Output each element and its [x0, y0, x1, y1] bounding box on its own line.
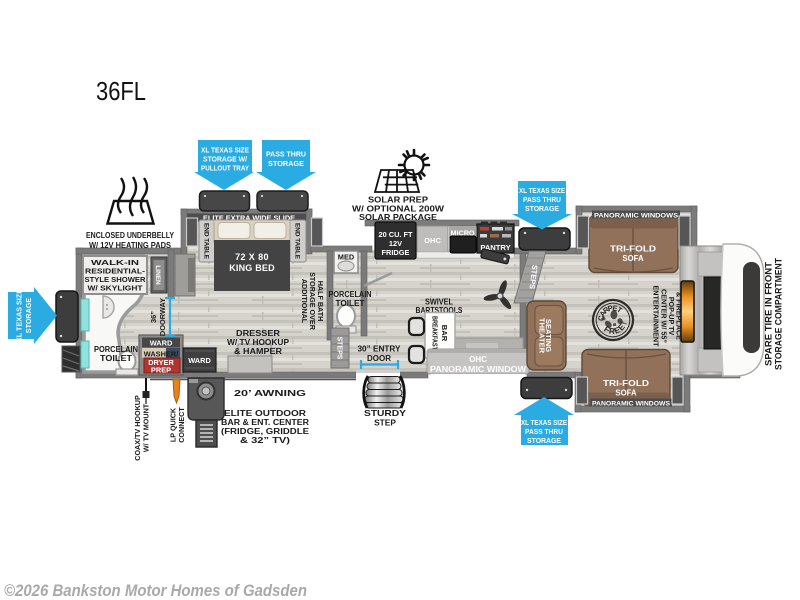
svg-text:STORAGE OVER: STORAGE OVER [308, 272, 317, 331]
svg-text:SOFA: SOFA [622, 254, 644, 263]
svg-text:KING BED: KING BED [229, 263, 275, 273]
svg-text:PORCELAIN: PORCELAIN [329, 290, 372, 299]
svg-text:CONNECT: CONNECT [177, 407, 186, 443]
svg-text:PORCELAIN: PORCELAIN [94, 345, 138, 354]
svg-text:SEATING: SEATING [544, 319, 553, 352]
svg-text:XL TEXAS SIZE: XL TEXAS SIZE [201, 146, 249, 155]
svg-text:STORAGE COMPARTMENT: STORAGE COMPARTMENT [774, 258, 784, 370]
svg-text:HALF BATH: HALF BATH [316, 281, 325, 322]
svg-text:PULLOUT TRAY: PULLOUT TRAY [201, 164, 249, 173]
svg-text:PREP: PREP [151, 366, 171, 375]
svg-text:BREAKFAST: BREAKFAST [431, 316, 440, 350]
svg-text:FRIDGE: FRIDGE [382, 248, 410, 257]
svg-text:TRI-FOLD: TRI-FOLD [610, 245, 656, 254]
svg-text:& FIREPLACE: & FIREPLACE [675, 292, 684, 340]
svg-text:12V: 12V [389, 239, 402, 248]
svg-text:XL TEXAS SIZE: XL TEXAS SIZE [15, 289, 24, 342]
svg-text:W/ TV HOOKUP: W/ TV HOOKUP [227, 338, 290, 347]
svg-text:ELITE OUTDOOR: ELITE OUTDOOR [224, 409, 306, 418]
svg-text:PASS THRU: PASS THRU [523, 195, 561, 204]
svg-text:PANORAMIC WINDOWS: PANORAMIC WINDOWS [592, 401, 670, 408]
svg-text:STORAGE: STORAGE [527, 436, 561, 445]
svg-text:LINEN: LINEN [154, 265, 161, 285]
svg-text:SOLAR PACKAGE: SOLAR PACKAGE [359, 212, 437, 222]
svg-text:W/ TV MOUNT: W/ TV MOUNT [142, 403, 151, 452]
svg-text:XL TEXAS SIZE: XL TEXAS SIZE [521, 418, 567, 427]
svg-text:& HAMPER: & HAMPER [234, 347, 282, 356]
svg-text:PANORAMIC WINDOW: PANORAMIC WINDOW [430, 365, 527, 374]
svg-text:DOORWAY: DOORWAY [158, 298, 167, 336]
svg-text:DRESSER: DRESSER [236, 329, 280, 338]
svg-text:STEP: STEP [374, 418, 396, 428]
svg-text:PANORAMIC WINDOWS: PANORAMIC WINDOWS [594, 213, 679, 220]
svg-text:MED: MED [338, 253, 355, 262]
svg-text:(FRIDGE, GRIDDLE: (FRIDGE, GRIDDLE [221, 427, 310, 436]
svg-text:STORAGE: STORAGE [268, 159, 304, 168]
svg-text:36FL: 36FL [96, 76, 146, 106]
svg-text:TOILET: TOILET [336, 299, 365, 308]
svg-text:STEPS: STEPS [336, 337, 343, 360]
svg-text:STORAGE: STORAGE [525, 204, 559, 213]
svg-text:OHC: OHC [424, 236, 441, 245]
svg-text:SOFA: SOFA [615, 389, 637, 398]
svg-text:PASS THRU: PASS THRU [266, 150, 306, 159]
svg-text:STORAGE W/: STORAGE W/ [203, 155, 248, 164]
svg-text:©2026 Bankston Motor Homes of: ©2026 Bankston Motor Homes of Gadsden [4, 581, 307, 600]
svg-text:ADDITIONAL: ADDITIONAL [300, 279, 309, 324]
svg-text:20’ AWNING: 20’ AWNING [234, 388, 306, 398]
svg-text:DOOR: DOOR [367, 354, 391, 363]
svg-text:END TABLE: END TABLE [203, 223, 210, 260]
svg-text:OHC: OHC [469, 355, 487, 364]
svg-text:SPARE TIRE IN FRONT: SPARE TIRE IN FRONT [764, 262, 774, 366]
svg-text:20 CU. FT: 20 CU. FT [378, 230, 413, 239]
svg-text:30” ENTRY: 30” ENTRY [358, 345, 402, 354]
svg-text:ENCLOSED UNDERBELLY: ENCLOSED UNDERBELLY [86, 230, 174, 240]
svg-text:WARD: WARD [188, 356, 211, 365]
svg-text:BAR: BAR [440, 325, 449, 342]
svg-text:TOILET: TOILET [100, 354, 132, 363]
svg-text:ENTERTAINMENT: ENTERTAINMENT [652, 286, 661, 348]
svg-text:72 X 80: 72 X 80 [235, 252, 269, 262]
svg-text:STURDY: STURDY [364, 408, 406, 418]
svg-text:36”: 36” [149, 311, 158, 323]
svg-text:& 32” TV): & 32” TV) [240, 436, 290, 445]
svg-text:XL TEXAS SIZE: XL TEXAS SIZE [519, 186, 565, 195]
svg-text:END TABLE: END TABLE [294, 223, 301, 260]
svg-text:TRI-FOLD: TRI-FOLD [603, 379, 649, 388]
svg-text:PASS THRU: PASS THRU [525, 427, 563, 436]
svg-text:W/ 12V HEATING PADS: W/ 12V HEATING PADS [89, 240, 171, 250]
svg-text:STORAGE: STORAGE [24, 298, 33, 334]
svg-text:WARD: WARD [150, 339, 173, 348]
svg-text:BAR & ENT. CENTER: BAR & ENT. CENTER [221, 418, 309, 427]
svg-text:W/ SKYLIGHT: W/ SKYLIGHT [88, 284, 143, 293]
